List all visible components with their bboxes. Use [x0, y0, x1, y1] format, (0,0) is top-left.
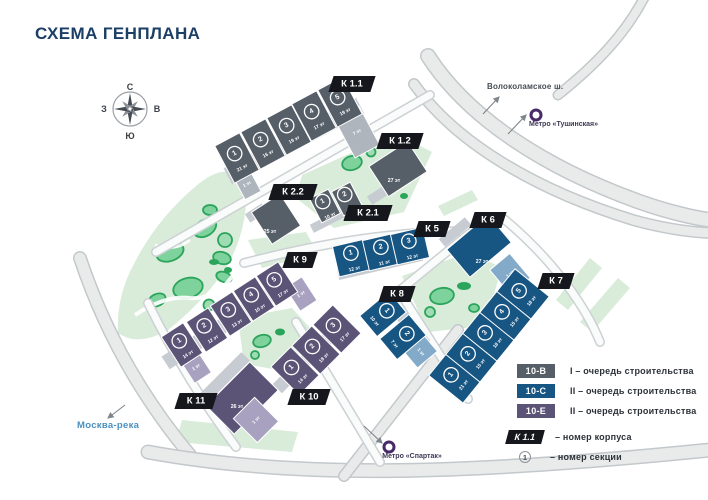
park-blob-dark	[224, 267, 232, 273]
tag-label: К 5	[425, 224, 439, 235]
tag-label: К 1.1	[341, 79, 363, 90]
tag-label: К 8	[390, 289, 404, 300]
tag-label: К 7	[549, 276, 563, 287]
block-floors: 26 эт	[231, 404, 244, 410]
legend-row-phase2-purple: 10-Е II – очередь строительства	[505, 404, 696, 418]
park-blob	[469, 304, 479, 312]
tag-k6[interactable]: К 6	[469, 212, 506, 228]
legend-section-symbol: 1	[519, 451, 531, 463]
tag-k1-2[interactable]: К 1.2	[376, 133, 423, 149]
tag-k2-1[interactable]: К 2.1	[343, 205, 392, 221]
park-blob-dark	[209, 259, 219, 265]
compass-rose: СЮЗВ	[101, 82, 161, 141]
highway-arrow	[483, 97, 499, 114]
legend-label-corpus: – номер корпуса	[555, 432, 632, 442]
highway-label: Волоколамское ш.	[487, 82, 563, 91]
park-blob-dark	[275, 329, 285, 336]
legend-row-corpus: К 1.1 – номер корпуса	[505, 430, 696, 444]
river-arrow	[108, 405, 125, 418]
legend-label-section: – номер секции	[550, 452, 622, 462]
tag-k10[interactable]: К 10	[287, 389, 330, 405]
metro-spartak-label: Метро «Спартак»	[372, 453, 452, 460]
legend-swatch-10e: 10-Е	[517, 404, 555, 418]
park-ring-blob	[425, 307, 435, 317]
block-floors: 25 эт	[264, 229, 277, 235]
legend-row-phase2-blue: 10-С II – очередь строительства	[505, 384, 696, 398]
compass-south-label: Ю	[125, 131, 134, 141]
metro-tushinskaya-arrow	[508, 115, 526, 134]
legend-label-phase2-purple: II – очередь строительства	[570, 406, 696, 416]
tag-k1-1[interactable]: К 1.1	[328, 76, 375, 92]
tag-label: К 9	[293, 255, 307, 266]
tag-label: К 2.1	[357, 208, 379, 219]
legend-corpus-tag: К 1.1	[505, 430, 545, 444]
tag-k8[interactable]: К 8	[378, 286, 415, 302]
park-blob-dark	[457, 282, 471, 290]
tag-label: К 1.2	[389, 136, 411, 147]
green-patch	[438, 190, 478, 216]
genplan-canvas: 1 эт7 эт121 эт216 эт319 эт417 эт519 эт27…	[0, 0, 708, 500]
compass-center	[128, 107, 131, 110]
legend-label-phase1: I – очередь строительства	[570, 366, 694, 376]
park-ring-blob	[251, 351, 259, 359]
park-ring-blob	[218, 233, 232, 247]
legend-row-phase1: 10-В I – очередь строительства	[505, 364, 696, 378]
block-floors: 27 эт	[476, 259, 489, 265]
tag-k11[interactable]: К 11	[174, 393, 217, 409]
tag-label: К 10	[299, 392, 318, 403]
legend-swatch-10s: 10-С	[517, 384, 555, 398]
legend: 10-В I – очередь строительства 10-С II –…	[505, 364, 696, 470]
tag-k5[interactable]: К 5	[413, 221, 450, 237]
tag-k7[interactable]: К 7	[537, 273, 574, 289]
metro-tushinskaya-label: Метро «Тушинская»	[529, 121, 598, 128]
tag-label: К 6	[481, 215, 495, 226]
river-label: Москва-река	[77, 420, 139, 431]
compass-east-label: В	[154, 104, 161, 114]
tag-label: К 2.2	[282, 187, 304, 198]
legend-swatch-10v: 10-В	[517, 364, 555, 378]
tag-k2-2[interactable]: К 2.2	[268, 184, 317, 200]
park-blob-dark	[400, 193, 408, 199]
compass-west-label: З	[101, 104, 107, 114]
legend-row-section: 1 – номер секции	[505, 450, 696, 464]
compass-north-label: С	[127, 82, 134, 92]
block-floors: 27 эт	[388, 178, 401, 184]
metro-spartak-icon[interactable]	[384, 442, 394, 452]
page-title: СХЕМА ГЕНПЛАНА	[35, 24, 200, 44]
tag-k9[interactable]: К 9	[282, 252, 317, 268]
tag-label: К 11	[187, 396, 206, 407]
legend-label-phase2-blue: II – очередь строительства	[570, 386, 696, 396]
metro-tushinskaya-icon[interactable]	[531, 110, 541, 120]
